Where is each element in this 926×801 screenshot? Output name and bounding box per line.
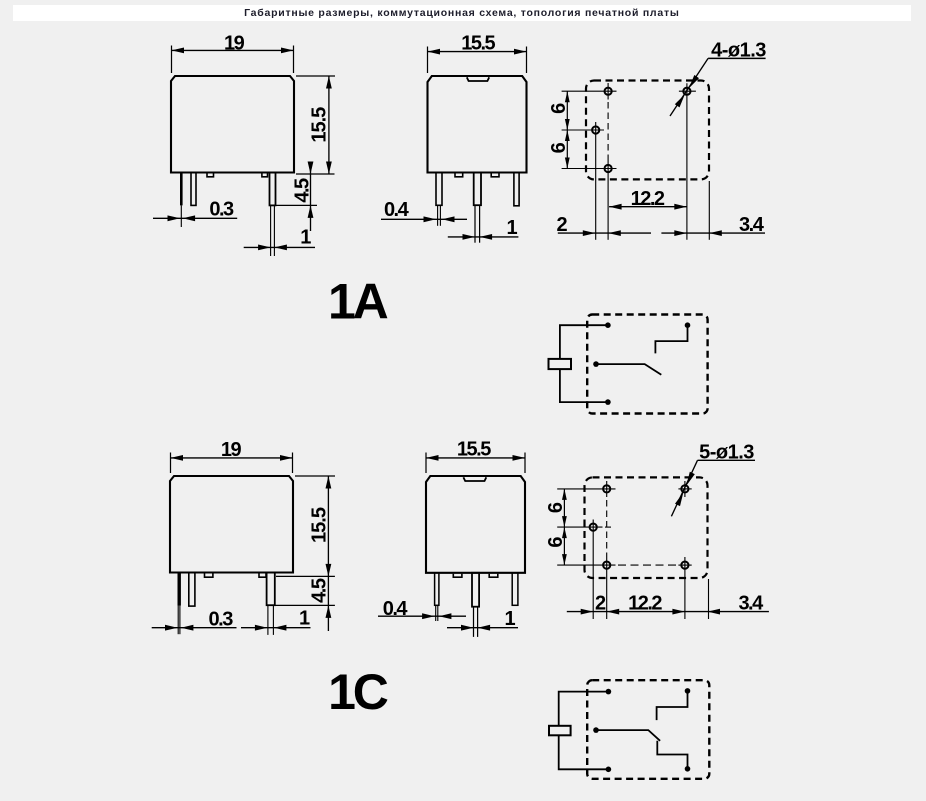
svg-text:1C: 1C	[328, 664, 388, 720]
svg-text:1: 1	[506, 217, 517, 239]
svg-text:0.3: 0.3	[209, 199, 234, 221]
svg-text:15.5: 15.5	[309, 507, 331, 543]
svg-text:1: 1	[300, 227, 311, 249]
svg-text:0.3: 0.3	[209, 608, 234, 630]
svg-text:0.4: 0.4	[383, 598, 409, 620]
svg-text:6: 6	[545, 502, 567, 513]
svg-text:12.2: 12.2	[631, 188, 665, 210]
svg-text:0.4: 0.4	[384, 199, 410, 221]
svg-text:4.5: 4.5	[291, 178, 313, 203]
svg-text:1: 1	[504, 608, 515, 630]
svg-text:12.2: 12.2	[628, 592, 662, 614]
svg-text:15.5: 15.5	[461, 32, 495, 54]
svg-text:19: 19	[224, 32, 245, 54]
svg-text:15.5: 15.5	[309, 107, 331, 143]
svg-text:19: 19	[221, 439, 242, 461]
svg-text:1A: 1A	[328, 274, 388, 330]
svg-text:6: 6	[545, 536, 567, 547]
svg-text:1: 1	[299, 608, 310, 630]
svg-text:2: 2	[595, 593, 606, 615]
svg-text:3.4: 3.4	[738, 592, 764, 614]
svg-text:6: 6	[548, 142, 570, 153]
svg-text:2: 2	[556, 214, 567, 236]
svg-text:3.4: 3.4	[739, 214, 765, 236]
svg-text:15.5: 15.5	[457, 438, 491, 460]
svg-text:4.5: 4.5	[308, 578, 330, 603]
svg-text:6: 6	[548, 103, 570, 114]
